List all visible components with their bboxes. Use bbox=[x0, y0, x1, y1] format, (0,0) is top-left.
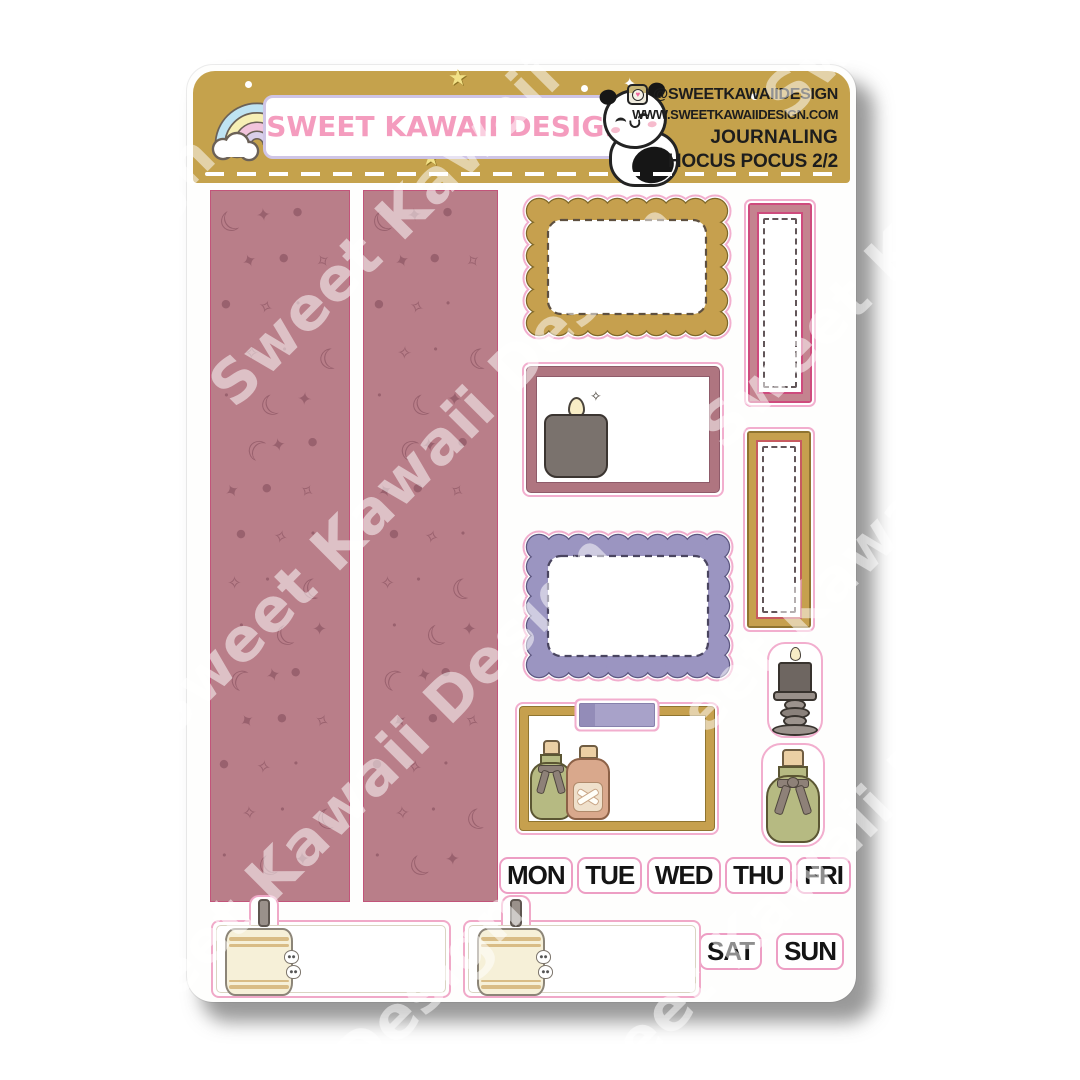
cork bbox=[782, 749, 804, 767]
skull-icon bbox=[284, 950, 299, 964]
day-label-thu: THU bbox=[725, 857, 791, 894]
lavender-scalloped-box bbox=[519, 527, 737, 690]
pink-frame-box: ✧ bbox=[522, 362, 724, 497]
candlestick-icon bbox=[767, 642, 823, 738]
gold-scalloped-box bbox=[519, 191, 735, 348]
candle-body bbox=[778, 662, 812, 694]
cork bbox=[579, 745, 598, 759]
washi-strip-right: ☾✦●✦●✧●✧•✧•☾•☾✦☾✦●✦●✧●✧•✧•☾•☾✦☾✦●✦●✧●✧•✧… bbox=[363, 190, 498, 902]
day-label-sat: SAT bbox=[699, 933, 762, 970]
website-url: WWW.SWEETKAWAIIDESIGN.COM bbox=[627, 105, 838, 125]
poison-icon bbox=[566, 745, 610, 820]
wick bbox=[501, 895, 531, 925]
skull-icon bbox=[536, 950, 551, 964]
candle-label-box bbox=[211, 920, 451, 998]
candle-icon: ✧ bbox=[544, 400, 610, 478]
washi-tape-clip bbox=[579, 703, 655, 727]
sheet-category: JOURNALING bbox=[627, 125, 838, 151]
potion-icon bbox=[761, 743, 825, 847]
logo-plate: SWEET KAWAII DESIGN bbox=[263, 95, 631, 159]
cork bbox=[543, 740, 560, 755]
sparkle-icon: ✧ bbox=[590, 388, 602, 405]
skull-icon bbox=[286, 965, 301, 979]
day-label-mon: MON bbox=[499, 857, 573, 894]
kit-name: HOCUS POCUS 2/2 bbox=[627, 151, 838, 173]
crossbones-label bbox=[573, 782, 603, 812]
instagram-icon: ♥ bbox=[627, 84, 648, 105]
bottle-body bbox=[766, 775, 820, 843]
instagram-handle: @SWEETKAWAIIDESIGN bbox=[653, 85, 838, 104]
star-icon: ★ bbox=[448, 67, 468, 89]
header-meta: ♥ @SWEETKAWAIIDESIGN WWW.SWEETKAWAIIDESI… bbox=[627, 84, 838, 173]
day-label-fri: FRI bbox=[796, 857, 851, 894]
candle-icon bbox=[477, 928, 545, 996]
wick bbox=[249, 895, 279, 925]
gold-narrow-label-strip bbox=[743, 427, 815, 632]
sparkle-icon bbox=[581, 85, 588, 92]
logo-text: SWEET KAWAII DESIGN bbox=[266, 113, 628, 141]
product-photo: ✦ ✦ ✦ ★ ★ bbox=[0, 0, 1080, 1080]
candle-body bbox=[544, 414, 608, 478]
day-label-wed: WED bbox=[647, 857, 721, 894]
weekday-row: MON TUE WED THU FRI bbox=[499, 857, 851, 894]
candle-label-box bbox=[463, 920, 701, 998]
sticker-sheet: ✦ ✦ ✦ ★ ★ bbox=[187, 65, 856, 1002]
sheet-header: ✦ ✦ ✦ ★ ★ bbox=[193, 71, 850, 183]
day-label-sun: SUN bbox=[776, 933, 844, 970]
bottle-body bbox=[566, 758, 610, 820]
skull-icon bbox=[538, 965, 553, 979]
dashed-divider bbox=[205, 172, 838, 176]
flame bbox=[790, 647, 801, 661]
day-label-tue: TUE bbox=[577, 857, 642, 894]
pink-narrow-label-strip bbox=[744, 199, 816, 407]
weekend-row: SAT SUN bbox=[699, 933, 844, 970]
gold-potion-box bbox=[515, 702, 719, 835]
washi-strip-left: ☾✦●✦●✧●✧•✧•☾•☾✦☾✦●✦●✧●✧•✧•☾•☾✦☾✦●✦●✧●✧•✧… bbox=[210, 190, 350, 902]
candle-icon bbox=[225, 928, 293, 996]
